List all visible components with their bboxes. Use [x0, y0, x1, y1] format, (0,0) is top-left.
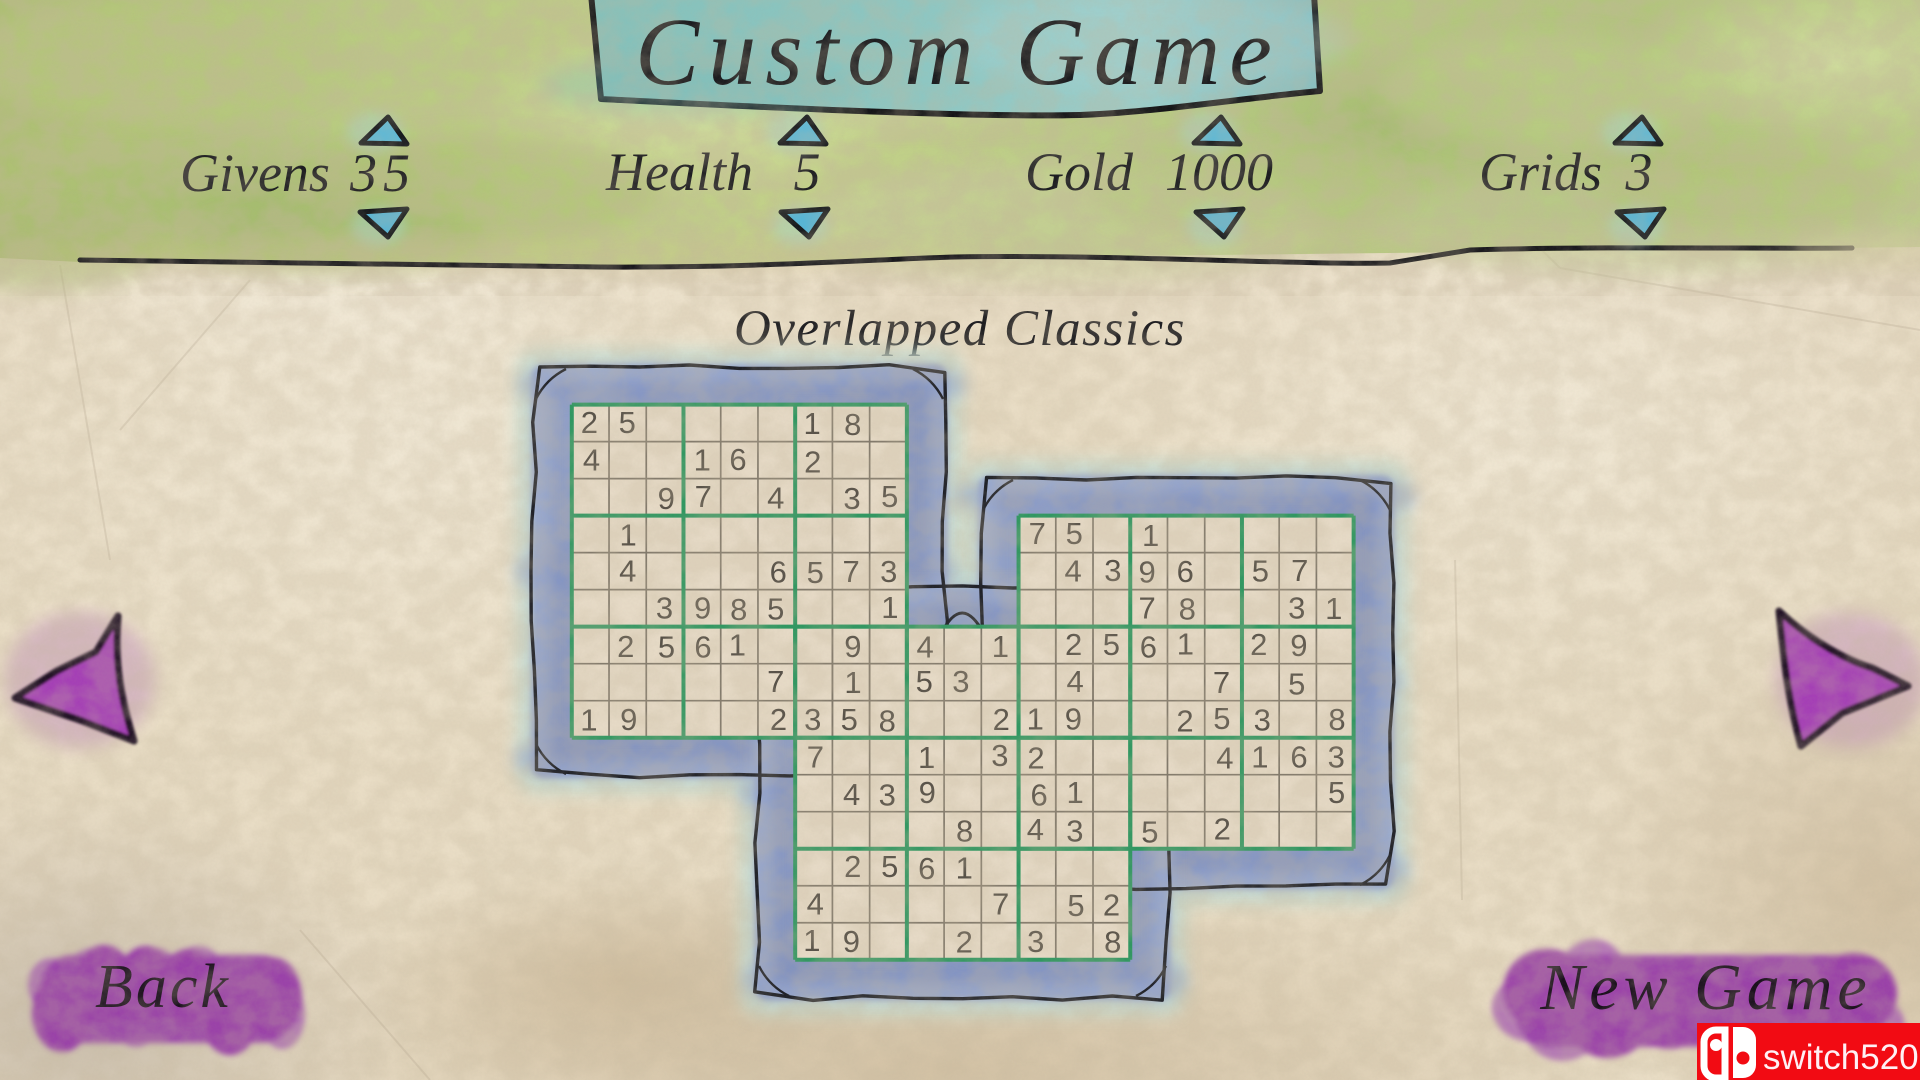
- svg-text:switch520: switch520: [1763, 1038, 1919, 1077]
